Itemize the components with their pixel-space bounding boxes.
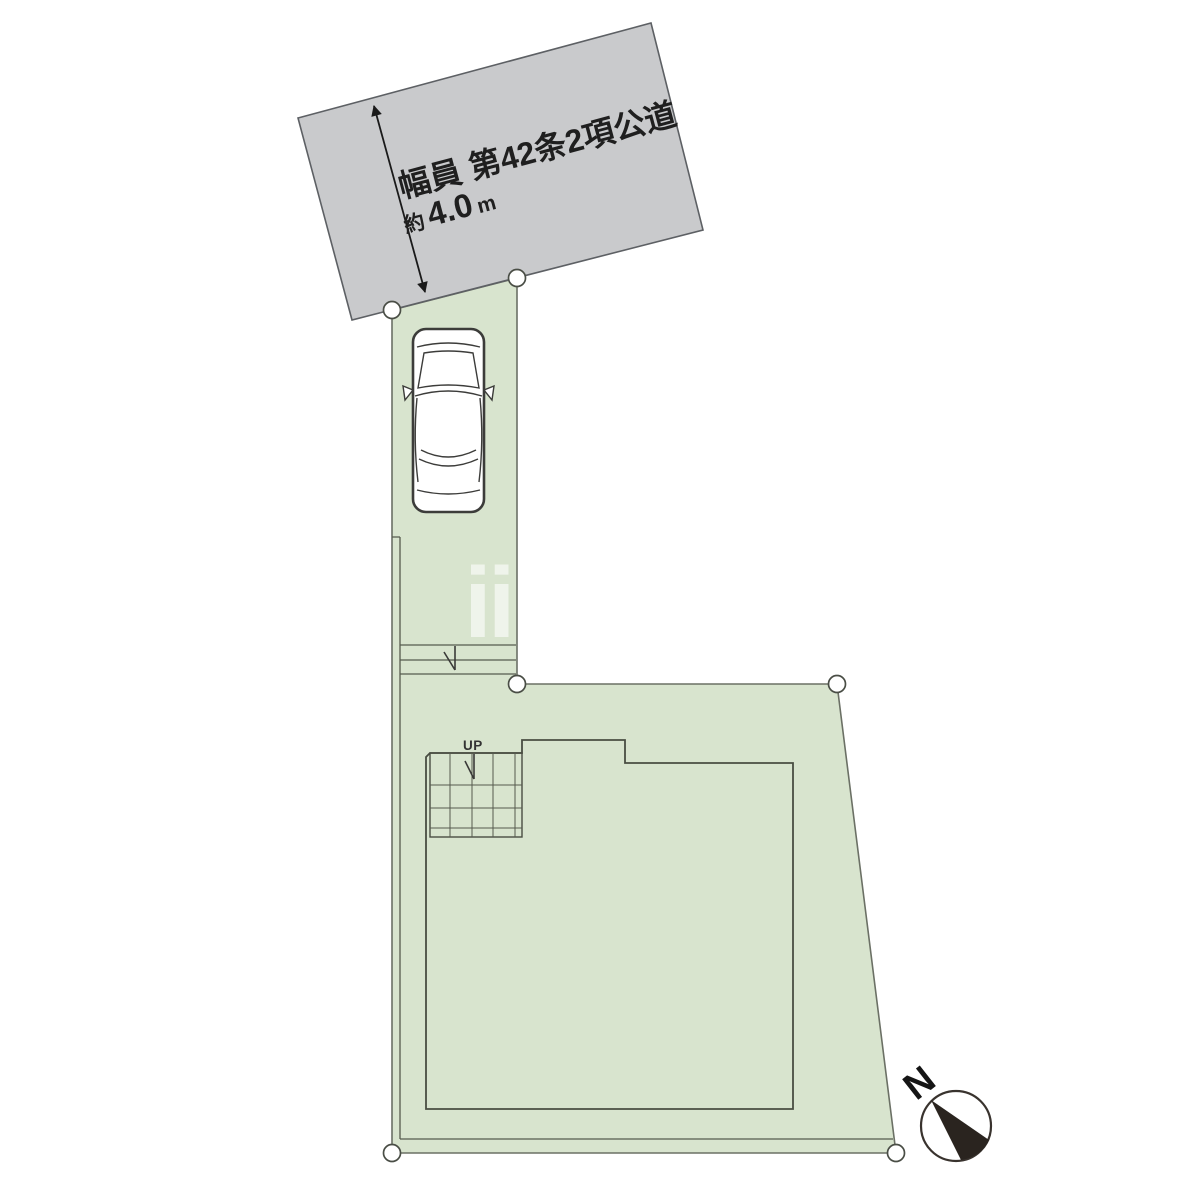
boundary-marker	[509, 270, 526, 287]
site-plan-drawing: UP 幅員 第42条2項公道 約 4.0 m	[0, 0, 1200, 1200]
boundary-marker	[888, 1145, 905, 1162]
watermark: ii	[464, 547, 512, 659]
boundary-marker	[829, 676, 846, 693]
up-label: UP	[463, 738, 483, 753]
site-plan-canvas: UP 幅員 第42条2項公道 約 4.0 m	[0, 0, 1200, 1200]
compass: N	[896, 1058, 991, 1161]
boundary-marker	[509, 676, 526, 693]
car	[403, 329, 494, 512]
boundary-marker	[384, 302, 401, 319]
boundary-marker	[384, 1145, 401, 1162]
